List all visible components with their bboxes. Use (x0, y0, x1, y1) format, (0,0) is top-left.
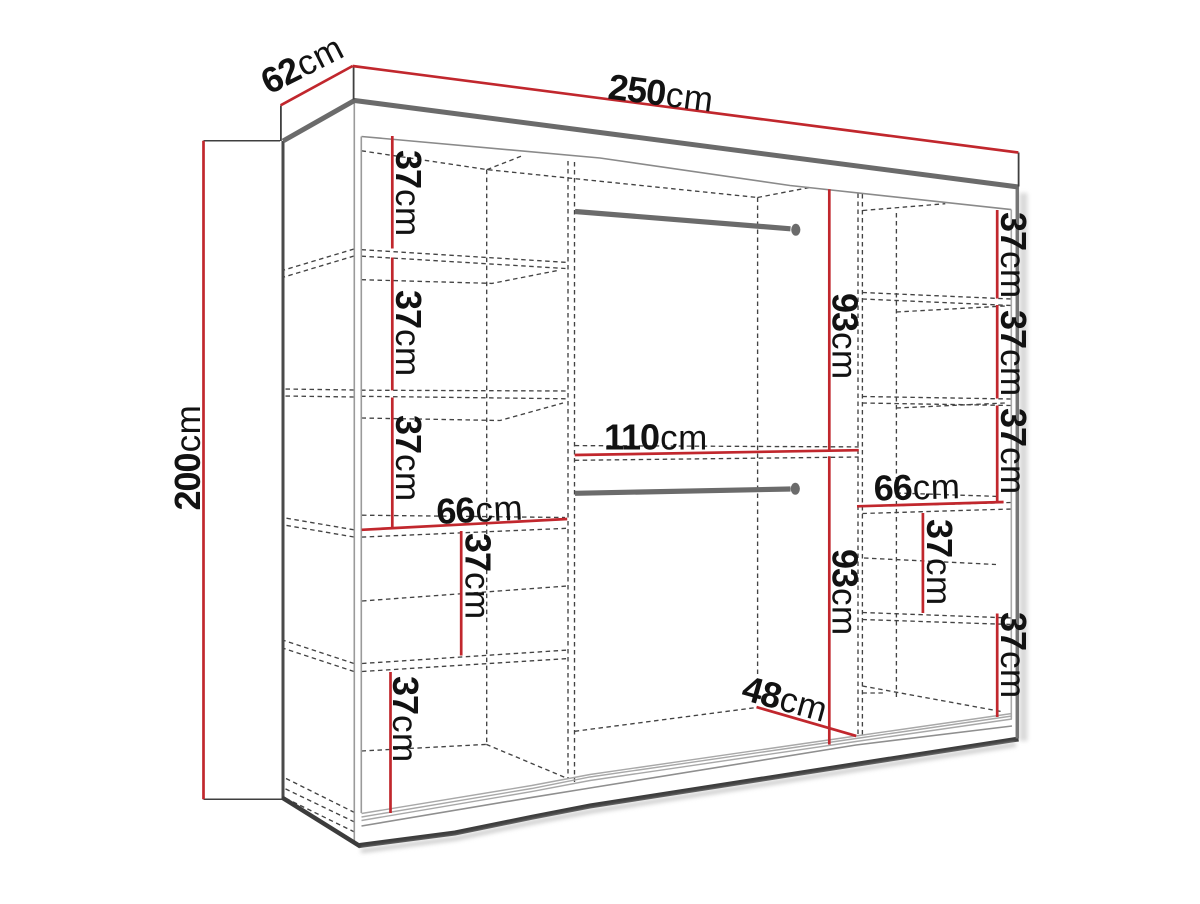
svg-text:93cm: 93cm (825, 293, 866, 380)
svg-text:37cm: 37cm (993, 310, 1034, 397)
svg-text:37cm: 37cm (388, 290, 429, 377)
svg-text:37cm: 37cm (919, 519, 960, 606)
svg-text:37cm: 37cm (993, 612, 1034, 699)
svg-text:37cm: 37cm (388, 415, 429, 502)
svg-text:66cm: 66cm (873, 465, 961, 508)
svg-text:37cm: 37cm (993, 408, 1034, 495)
svg-text:200cm: 200cm (167, 405, 208, 511)
svg-text:93cm: 93cm (825, 549, 866, 636)
svg-text:37cm: 37cm (388, 150, 429, 237)
svg-text:37cm: 37cm (458, 533, 499, 620)
svg-text:66cm: 66cm (435, 487, 524, 532)
svg-text:37cm: 37cm (993, 212, 1034, 299)
svg-text:110cm: 110cm (604, 417, 708, 458)
svg-text:37cm: 37cm (385, 676, 426, 763)
